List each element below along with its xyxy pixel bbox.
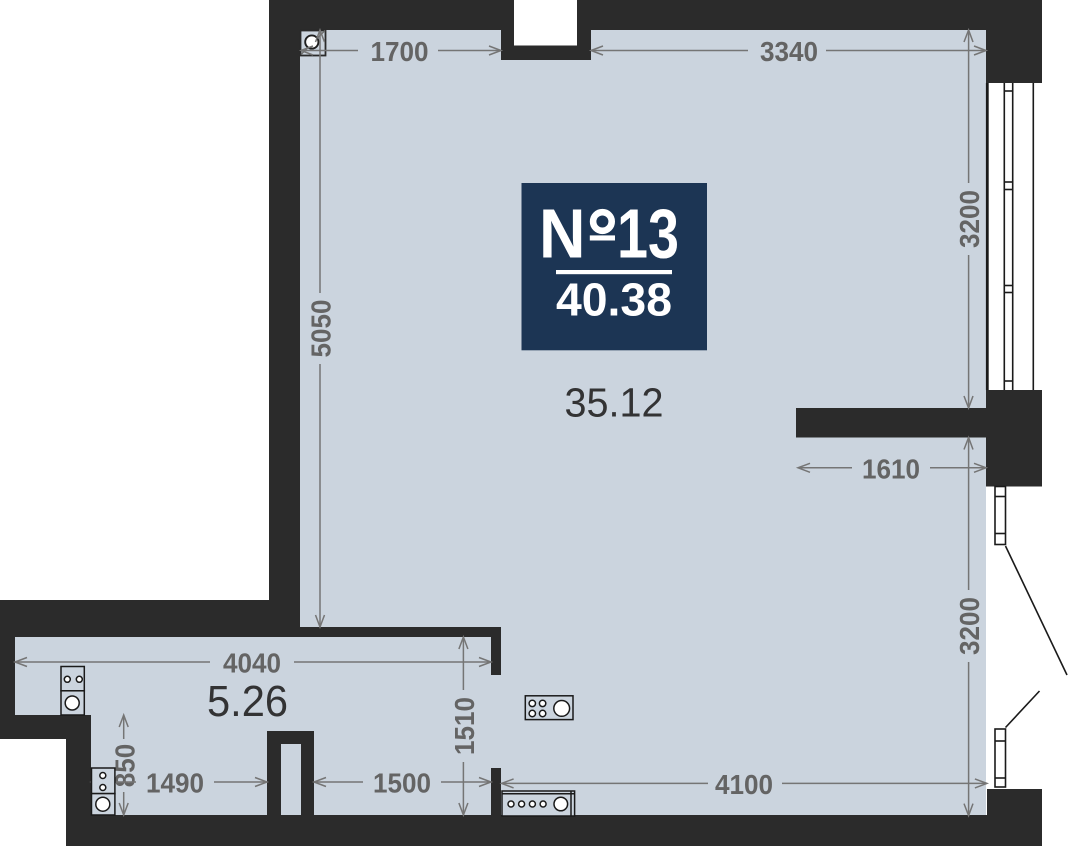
svg-text:1510: 1510 <box>449 697 480 755</box>
svg-text:1490: 1490 <box>146 768 204 799</box>
svg-text:13: 13 <box>617 195 679 273</box>
svg-text:5.26: 5.26 <box>207 678 288 726</box>
svg-text:1610: 1610 <box>862 453 920 484</box>
svg-text:4040: 4040 <box>223 648 281 679</box>
svg-text:35.12: 35.12 <box>565 380 664 426</box>
svg-text:3340: 3340 <box>760 36 818 67</box>
svg-text:N: N <box>539 195 586 273</box>
svg-text:4100: 4100 <box>715 769 773 800</box>
svg-text:40.38: 40.38 <box>556 274 672 326</box>
svg-text:5050: 5050 <box>306 300 337 358</box>
svg-text:1500: 1500 <box>373 768 431 799</box>
svg-text:3200: 3200 <box>954 597 985 655</box>
svg-text:1700: 1700 <box>371 36 429 67</box>
svg-text:3200: 3200 <box>954 190 985 248</box>
